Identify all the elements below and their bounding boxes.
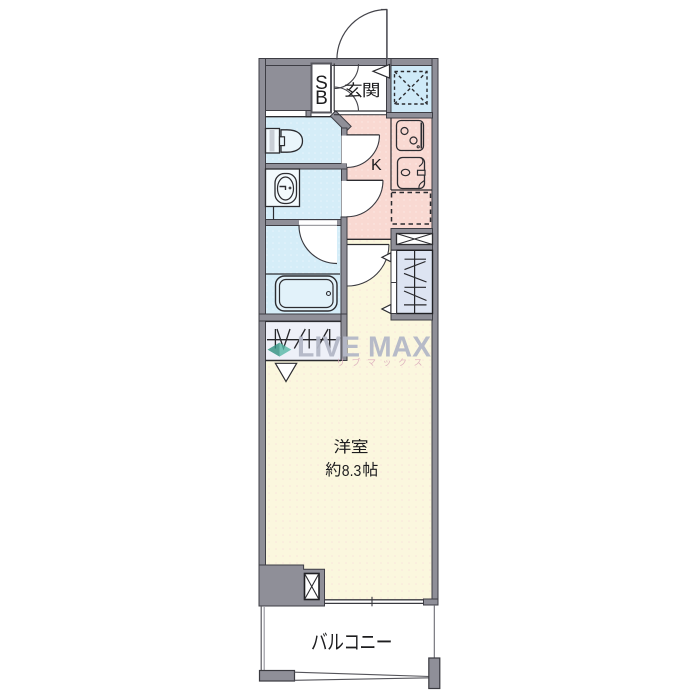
svg-text:K: K xyxy=(371,157,382,174)
svg-text:8.3: 8.3 xyxy=(342,463,362,480)
svg-text:B: B xyxy=(315,88,328,109)
svg-text:LIVE MAX: LIVE MAX xyxy=(297,332,431,364)
